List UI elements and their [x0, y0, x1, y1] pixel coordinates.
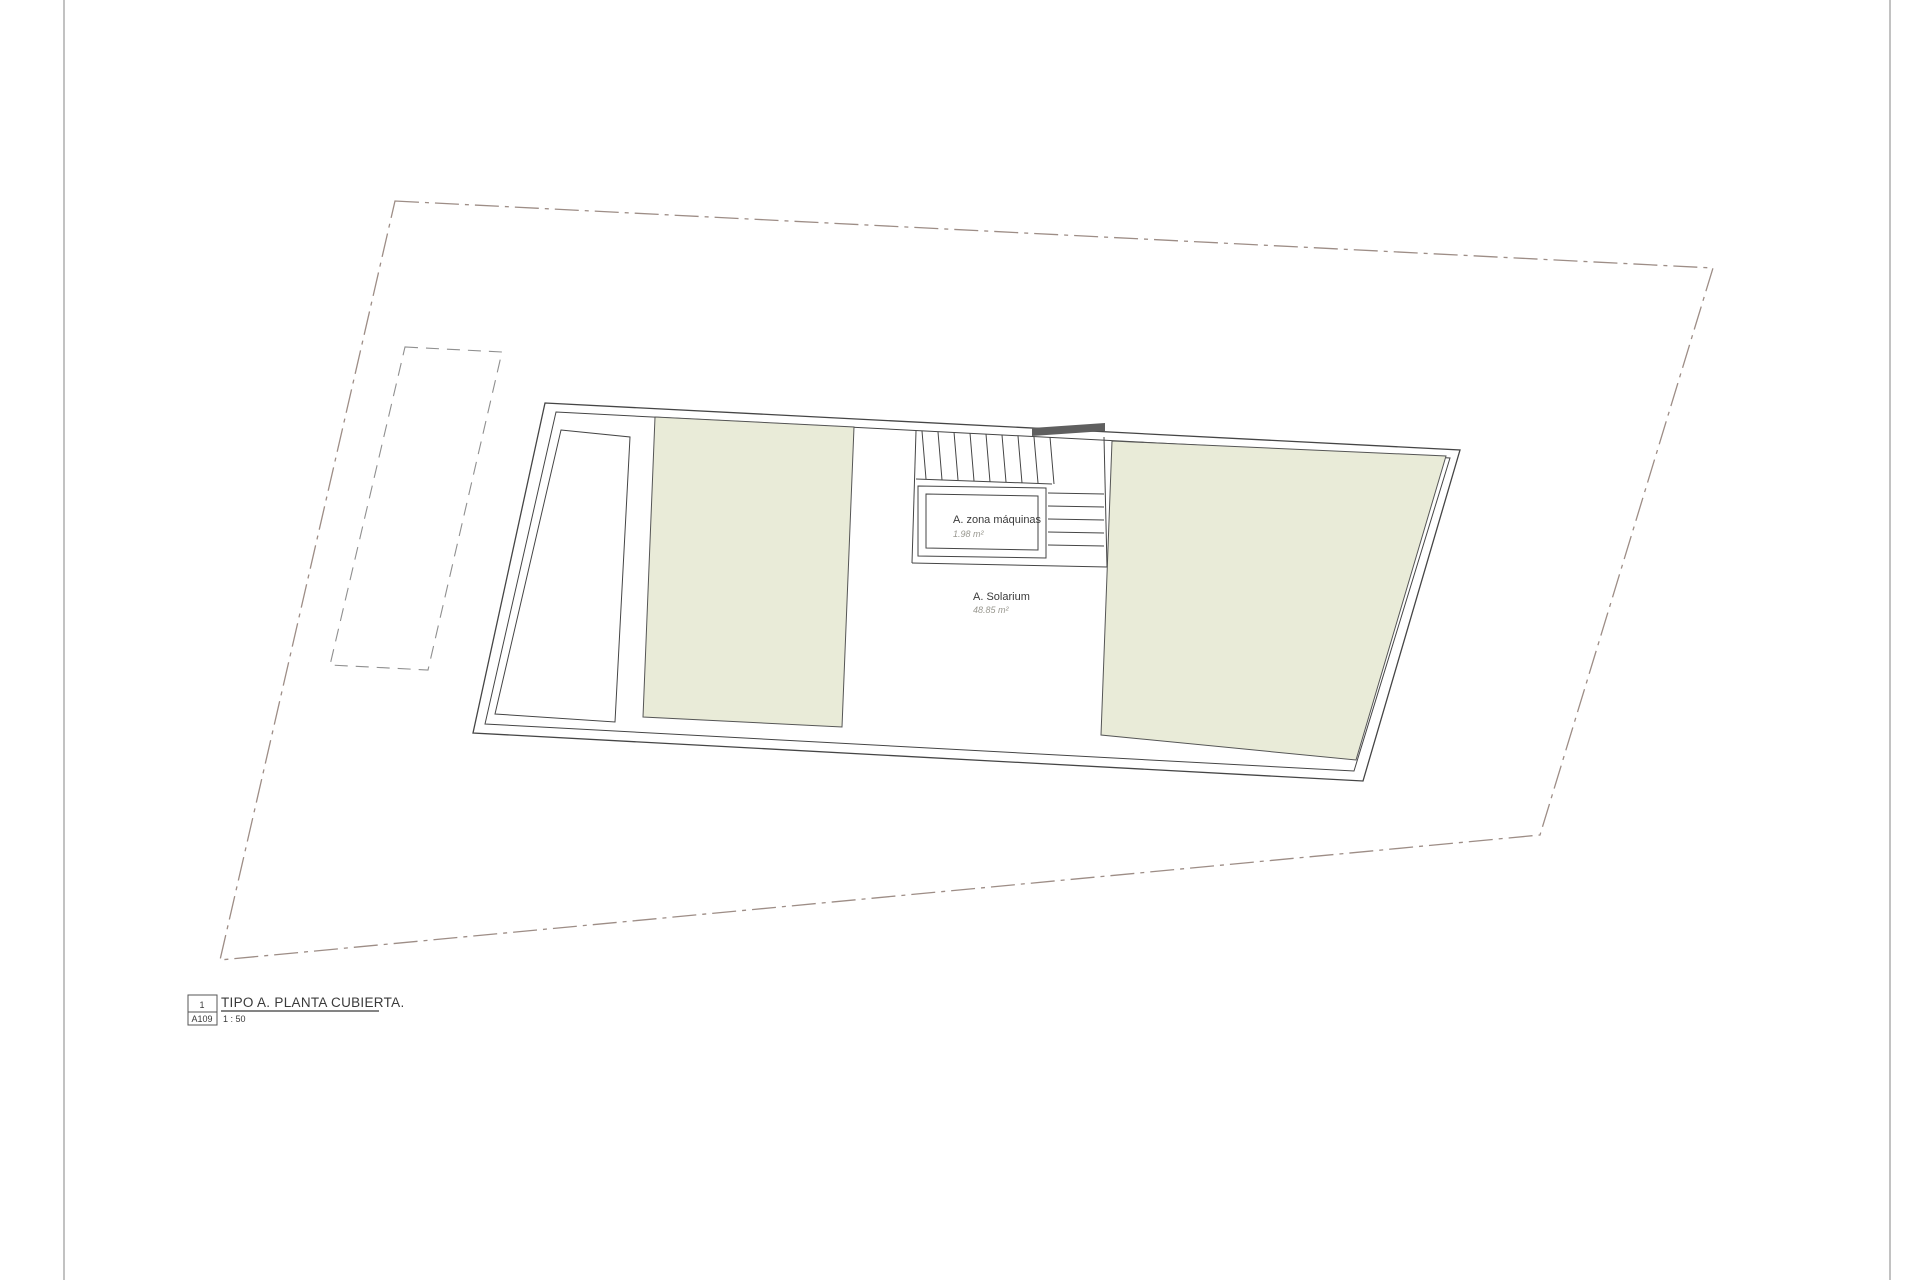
roof-terrace-right	[1101, 441, 1446, 760]
sheet-number: A109	[191, 1014, 212, 1024]
machine-room-area: 1.98 m²	[953, 529, 985, 539]
machine-room-label: A. zona máquinas	[953, 514, 1042, 526]
title-block: 1 A109 TIPO A. PLANTA CUBIERTA. 1 : 50	[188, 995, 405, 1025]
roof-terrace-left	[643, 417, 854, 727]
drawing-title: TIPO A. PLANTA CUBIERTA.	[221, 995, 405, 1010]
detail-number: 1	[199, 1000, 204, 1010]
solarium-label: A. Solarium	[973, 591, 1030, 603]
drawing-scale: 1 : 50	[223, 1014, 246, 1024]
dashed-projection-rect	[330, 347, 502, 670]
roof-plan-svg: A. zona máquinas 1.98 m² A. Solarium 48.…	[0, 0, 1920, 1280]
solarium-area: 48.85 m²	[973, 605, 1010, 615]
drawing-sheet: A. zona máquinas 1.98 m² A. Solarium 48.…	[0, 0, 1920, 1280]
